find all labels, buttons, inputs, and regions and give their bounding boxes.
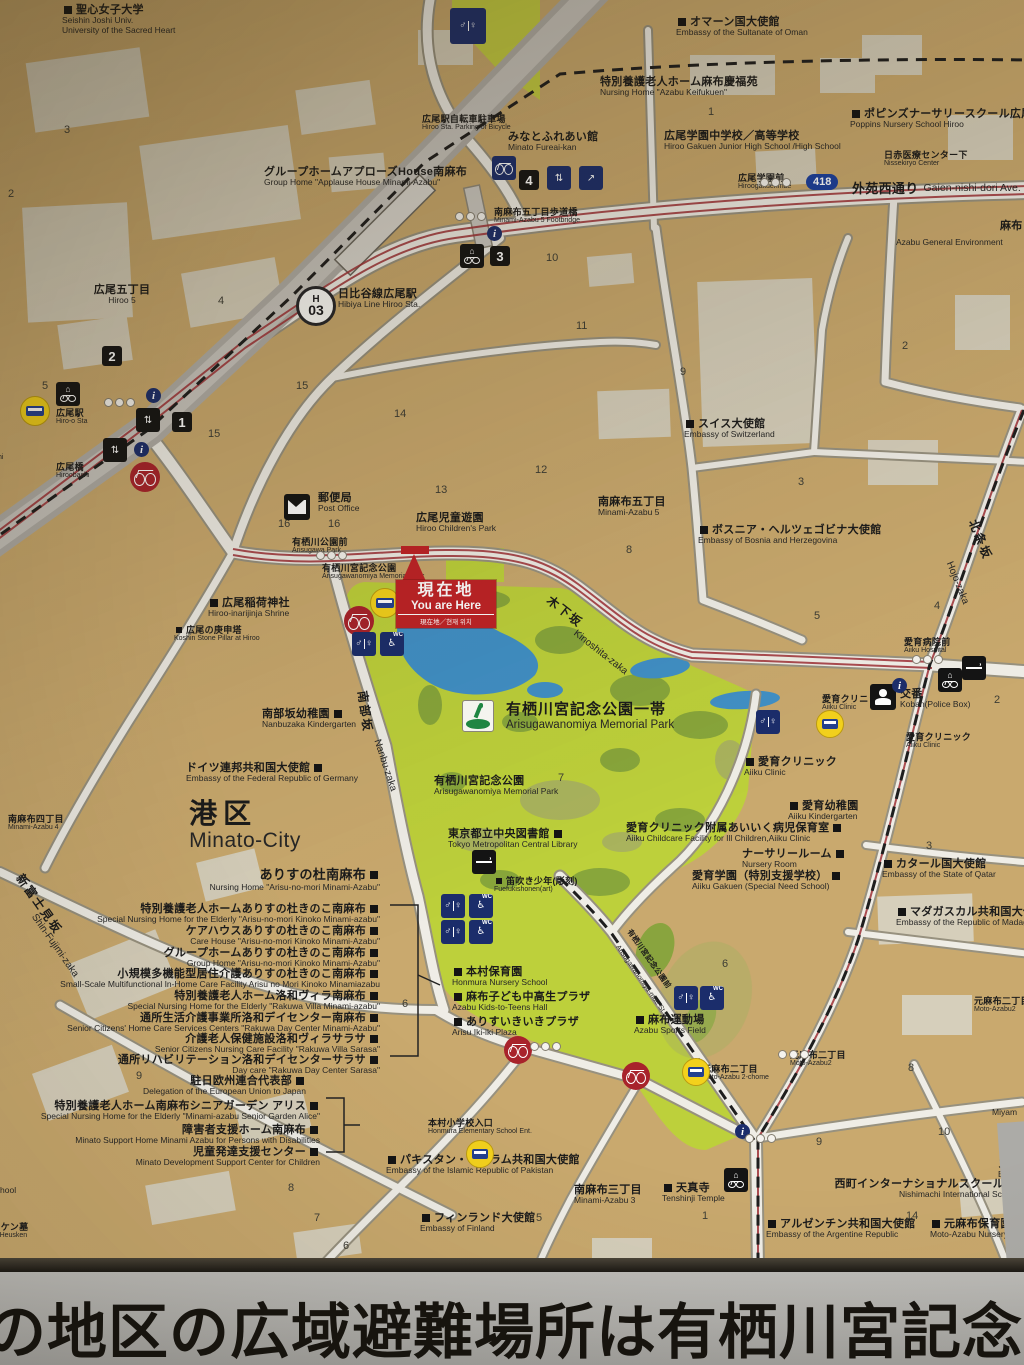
you-are-here-bar (401, 546, 429, 554)
map-base (0, 0, 1024, 1262)
station-number: 03 (308, 304, 324, 317)
map-photo: 聖心女子大学Seishin Joshi Univ.University of t… (0, 0, 1024, 1365)
banner-underlined-text: 有栖川宮記念公 (657, 1299, 1024, 1365)
route-418-badge: 418 (806, 174, 838, 190)
banner-pre-text: の地区の広域避難場所は (0, 1299, 657, 1365)
you-are-here-sub: 現在地／현재 위치 (398, 614, 494, 626)
you-are-here-en: You are Here (398, 600, 494, 613)
you-are-here-sign: 現在地 You are Here 現在地／현재 위치 (396, 580, 496, 628)
evacuation-banner: の地区の広域避難場所は有栖川宮記念公 (0, 1272, 1024, 1365)
evacuation-banner-text: の地区の広域避難場所は有栖川宮記念公 (0, 1284, 1024, 1365)
you-are-here-jp: 現在地 (398, 583, 494, 600)
hibiya-line-station-badge: H 03 (296, 286, 336, 326)
